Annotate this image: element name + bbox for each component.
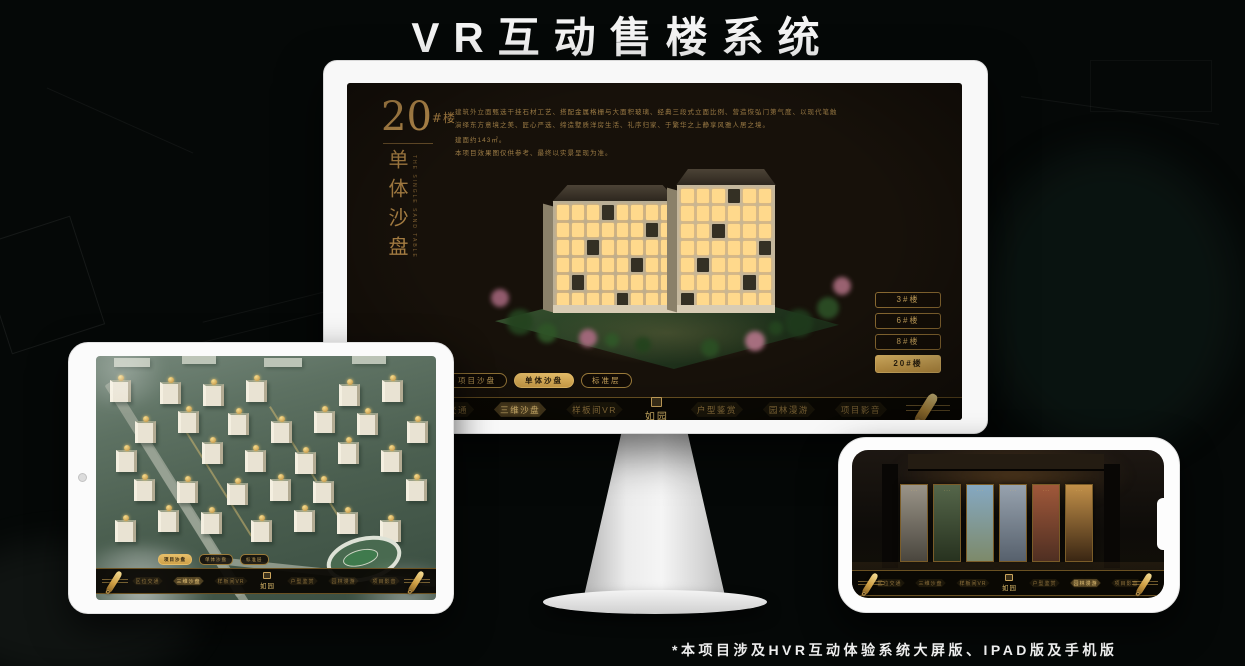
window <box>697 241 710 255</box>
building-number-marker[interactable] <box>389 445 395 451</box>
building-number-marker[interactable] <box>303 447 309 453</box>
building-number-marker[interactable] <box>321 476 327 482</box>
bg-map-outline <box>1090 60 1212 112</box>
window <box>712 224 725 238</box>
tree <box>579 329 597 347</box>
building-number-marker[interactable] <box>414 474 420 480</box>
residential-building <box>270 479 291 501</box>
logo-text: 如园 <box>998 582 1020 592</box>
window <box>759 224 772 238</box>
tree <box>817 297 839 319</box>
logo-text: 如园 <box>256 580 278 590</box>
tab-单体沙盘[interactable]: 单体沙盘 <box>514 373 574 388</box>
building-block <box>553 201 677 307</box>
monitor-stand-neck <box>584 430 725 596</box>
window <box>617 240 629 255</box>
building-number-marker[interactable] <box>390 375 396 381</box>
tree <box>635 337 651 353</box>
section-title-vertical: 单体沙盘 <box>383 149 412 314</box>
tree <box>507 309 533 335</box>
window <box>557 258 569 273</box>
residential-building <box>337 512 358 534</box>
distant-building <box>352 356 386 364</box>
nav-item-户型鉴赏[interactable]: 户型鉴赏 <box>1027 579 1061 588</box>
building-number-marker[interactable] <box>322 406 328 412</box>
window <box>759 258 772 272</box>
roof <box>545 185 685 202</box>
nav-item-项目影音[interactable]: 项目影音 <box>368 577 402 586</box>
scroll-ornament-right[interactable] <box>906 394 950 420</box>
scroll-ornament-right[interactable] <box>404 572 430 590</box>
residential-building <box>227 483 248 505</box>
window <box>602 223 614 238</box>
window <box>587 223 599 238</box>
window <box>681 275 694 289</box>
nav-item-样板间VR[interactable]: 样板间VR <box>213 577 250 586</box>
window <box>602 205 614 220</box>
nav-item-三维沙盘[interactable]: 三维沙盘 <box>491 402 549 418</box>
scroll-ornament-left[interactable] <box>858 574 884 592</box>
building-number-title: 20#楼 <box>381 95 456 140</box>
window <box>697 258 710 272</box>
window <box>759 189 772 203</box>
building-number-marker[interactable] <box>123 515 129 521</box>
residential-building <box>271 421 292 443</box>
window <box>646 240 658 255</box>
window <box>712 275 725 289</box>
window <box>728 275 741 289</box>
building-number-marker[interactable] <box>185 476 191 482</box>
building-unit: #楼 <box>432 111 456 125</box>
nav-item-园林漫游[interactable]: 园林漫游 <box>760 402 818 418</box>
window <box>681 241 694 255</box>
window <box>681 206 694 220</box>
window <box>557 223 569 238</box>
window <box>743 224 756 238</box>
residential-building <box>407 421 428 443</box>
building-number-marker[interactable] <box>347 379 353 385</box>
scroll-ornament-left[interactable] <box>102 572 128 590</box>
residential-building <box>406 479 427 501</box>
residential-building <box>202 442 223 464</box>
footnote: *本项目涉及HVR互动体验系统大屏版、IPAD版及手机版 <box>672 640 1117 660</box>
window <box>631 240 643 255</box>
window <box>587 258 599 273</box>
view-tab-group: 项目沙盘单体沙盘标准层 <box>447 373 632 388</box>
nav-item-样板间VR[interactable]: 样板间VR <box>955 579 992 588</box>
tab-标准层[interactable]: 标准层 <box>581 373 632 388</box>
building-number-marker[interactable] <box>388 515 394 521</box>
tab-项目沙盘[interactable]: 项目沙盘 <box>158 554 192 565</box>
section-subtitle-en: THE SINGLE SAND TABLE <box>411 155 417 305</box>
nav-item-户型鉴赏[interactable]: 户型鉴赏 <box>688 402 746 418</box>
nav-item-园林漫游[interactable]: 园林漫游 <box>326 577 360 586</box>
residential-building <box>201 512 222 534</box>
nav-item-项目影音[interactable]: 项目影音 <box>832 402 890 418</box>
residential-building <box>382 380 403 402</box>
building-number-marker[interactable] <box>236 408 242 414</box>
description-line: 演绎东方意境之美、匠心严选、缔造墅质洋房生活、礼序归家、于繁华之上静享风雅人居之… <box>455 120 843 133</box>
building-number-marker[interactable] <box>415 416 421 422</box>
description-line: 本项目效果图仅供参考、最终以实景呈现为准。 <box>455 148 637 161</box>
building-number-marker[interactable] <box>253 445 259 451</box>
nav-item-三维沙盘[interactable]: 三维沙盘 <box>172 577 206 586</box>
ruyuan-logo: 如园 <box>640 397 674 421</box>
window <box>697 206 710 220</box>
window <box>697 189 710 203</box>
logo-seal-icon <box>1005 574 1013 581</box>
window <box>712 206 725 220</box>
distant-building <box>182 356 216 364</box>
gold-divider <box>383 143 433 144</box>
tree <box>491 289 509 307</box>
window <box>759 275 772 289</box>
window <box>743 206 756 220</box>
panorama-card-5[interactable] <box>1032 484 1060 562</box>
bg-map-outline <box>0 216 105 355</box>
tree <box>701 339 719 357</box>
panorama-card-strip <box>900 484 1093 562</box>
panorama-card-6[interactable] <box>1065 484 1093 562</box>
residential-building <box>245 450 266 472</box>
window <box>743 275 756 289</box>
building-number-marker[interactable] <box>210 437 216 443</box>
window <box>743 258 756 272</box>
building-number-marker[interactable] <box>279 416 285 422</box>
window <box>646 275 658 290</box>
window <box>631 275 643 290</box>
window <box>743 189 756 203</box>
window <box>572 223 584 238</box>
window <box>602 258 614 273</box>
window <box>728 224 741 238</box>
tree <box>785 309 813 337</box>
building-number-marker[interactable] <box>365 408 371 414</box>
building-number-marker[interactable] <box>254 375 260 381</box>
logo-text: 如园 <box>640 408 674 421</box>
building-description: 建筑外立面甄选干挂石材工艺、搭配金属格栅与大面积玻璃、经典三段式立面比例、营造恢… <box>455 107 873 160</box>
residential-building <box>116 450 137 472</box>
residential-building <box>338 442 359 464</box>
window <box>728 241 741 255</box>
tree <box>745 331 765 351</box>
bg-landscape-glow <box>980 150 1240 450</box>
window <box>646 258 658 273</box>
building-number-marker[interactable] <box>278 474 284 480</box>
description-line: 建面约143㎡。 <box>455 135 525 148</box>
window <box>617 275 629 290</box>
tab-标准层[interactable]: 标准层 <box>240 554 269 565</box>
building-number-marker[interactable] <box>345 507 351 513</box>
window <box>728 189 741 203</box>
tab-单体沙盘[interactable]: 单体沙盘 <box>199 554 233 565</box>
building-number-marker[interactable] <box>142 474 148 480</box>
tree <box>833 277 851 295</box>
window <box>557 275 569 290</box>
window <box>646 223 658 238</box>
floor-button-group: 3#楼6#楼8#楼20#楼 <box>875 292 941 378</box>
window <box>712 258 725 272</box>
residential-building <box>357 413 378 435</box>
logo-seal-icon <box>651 397 662 407</box>
window <box>681 258 694 272</box>
roof <box>670 169 782 186</box>
building-3d-render[interactable] <box>487 161 847 376</box>
tree <box>537 323 557 343</box>
residential-building <box>158 510 179 532</box>
nav-item-row: 区位交通三维沙盘样板间VR如园户型鉴赏园林漫游项目影音 <box>419 397 890 421</box>
ruyuan-logo: 如园 <box>256 572 278 590</box>
tree <box>605 333 619 347</box>
window <box>617 205 629 220</box>
window <box>557 240 569 255</box>
building-number-marker[interactable] <box>124 445 130 451</box>
window <box>572 258 584 273</box>
window <box>617 258 629 273</box>
residential-building <box>295 452 316 474</box>
window <box>617 223 629 238</box>
residential-building <box>294 510 315 532</box>
residential-building <box>135 421 156 443</box>
window <box>572 275 584 290</box>
residential-building <box>381 450 402 472</box>
tree <box>769 321 783 335</box>
poster-canvas: VR互动售楼系统 20#楼 单体沙盘 THE SINGLE SAND TABLE… <box>0 0 1245 666</box>
window <box>743 241 756 255</box>
window <box>728 258 741 272</box>
nav-item-户型鉴赏[interactable]: 户型鉴赏 <box>285 577 319 586</box>
phone-notch <box>1157 498 1165 550</box>
phone-screen: 区位交通三维沙盘样板间VR如园户型鉴赏园林漫游项目影音 <box>852 450 1164 598</box>
tablet-camera <box>78 473 87 482</box>
residential-building <box>228 413 249 435</box>
residential-building <box>314 411 335 433</box>
floor-button-6#楼[interactable]: 6#楼 <box>875 313 941 329</box>
interior-beam <box>908 454 1104 471</box>
panorama-card-1[interactable] <box>900 484 928 562</box>
window <box>602 240 614 255</box>
logo-seal-icon <box>263 572 271 579</box>
tablet-screen: 项目沙盘单体沙盘标准层 区位交通三维沙盘样板间VR如园户型鉴赏园林漫游项目影音 <box>96 356 436 600</box>
ruyuan-logo: 如园 <box>998 574 1020 592</box>
window <box>759 241 772 255</box>
window <box>557 205 569 220</box>
floor-button-3#楼[interactable]: 3#楼 <box>875 292 941 308</box>
building-block <box>677 185 775 307</box>
building-number-marker[interactable] <box>235 478 241 484</box>
floor-button-8#楼[interactable]: 8#楼 <box>875 334 941 350</box>
view-tab-group: 项目沙盘单体沙盘标准层 <box>158 554 269 565</box>
residential-building <box>134 479 155 501</box>
window <box>681 224 694 238</box>
residential-building <box>246 380 267 402</box>
window <box>728 206 741 220</box>
window <box>712 189 725 203</box>
window <box>572 205 584 220</box>
window <box>646 205 658 220</box>
panorama-card-4[interactable] <box>999 484 1027 562</box>
nav-item-row: 区位交通三维沙盘样板间VR如园户型鉴赏园林漫游项目影音 <box>130 572 401 590</box>
window <box>697 224 710 238</box>
floor-button-20#楼[interactable]: 20#楼 <box>875 355 941 373</box>
residential-building <box>203 384 224 406</box>
building-number-marker[interactable] <box>166 505 172 511</box>
window <box>712 241 725 255</box>
window <box>697 275 710 289</box>
window <box>587 275 599 290</box>
building-number-marker[interactable] <box>209 507 215 513</box>
nav-item-区位交通[interactable]: 区位交通 <box>130 577 164 586</box>
tab-项目沙盘[interactable]: 项目沙盘 <box>447 373 507 388</box>
description-line: 建筑外立面甄选干挂石材工艺、搭配金属格栅与大面积玻璃、经典三段式立面比例、营造恢… <box>455 107 871 120</box>
monitor-stand-base <box>543 590 767 614</box>
main-nav-bar: 区位交通三维沙盘样板间VR如园户型鉴赏园林漫游项目影音 <box>96 568 436 594</box>
residential-building <box>251 520 272 542</box>
window <box>587 240 599 255</box>
window <box>587 205 599 220</box>
window <box>631 258 643 273</box>
nav-item-三维沙盘[interactable]: 三维沙盘 <box>914 579 948 588</box>
distant-building <box>264 358 302 367</box>
page-title: VR互动售楼系统 <box>0 4 1245 65</box>
residential-building <box>177 481 198 503</box>
nav-item-园林漫游[interactable]: 园林漫游 <box>1068 579 1102 588</box>
building-number-marker[interactable] <box>186 406 192 412</box>
residential-building <box>339 384 360 406</box>
bg-map-line <box>47 88 194 154</box>
main-nav-bar: 区位交通三维沙盘样板间VR如园户型鉴赏园林漫游项目影音 <box>852 570 1164 596</box>
building-number-marker[interactable] <box>259 515 265 521</box>
building-number-marker[interactable] <box>211 379 217 385</box>
nav-item-样板间VR[interactable]: 样板间VR <box>563 402 626 418</box>
residential-building <box>313 481 334 503</box>
window <box>572 240 584 255</box>
building-number-marker[interactable] <box>302 505 308 511</box>
panorama-card-3[interactable] <box>966 484 994 562</box>
window <box>602 275 614 290</box>
residential-building <box>178 411 199 433</box>
scroll-ornament-right[interactable] <box>1132 574 1158 592</box>
interior-column <box>1104 464 1120 568</box>
window <box>631 223 643 238</box>
building-number-marker[interactable] <box>346 437 352 443</box>
building-number-marker[interactable] <box>143 416 149 422</box>
nav-item-row: 区位交通三维沙盘样板间VR如园户型鉴赏园林漫游项目影音 <box>872 574 1143 592</box>
window <box>631 205 643 220</box>
window <box>759 206 772 220</box>
window <box>681 189 694 203</box>
interior-column <box>882 464 898 568</box>
panorama-card-2[interactable] <box>933 484 961 562</box>
residential-building <box>115 520 136 542</box>
